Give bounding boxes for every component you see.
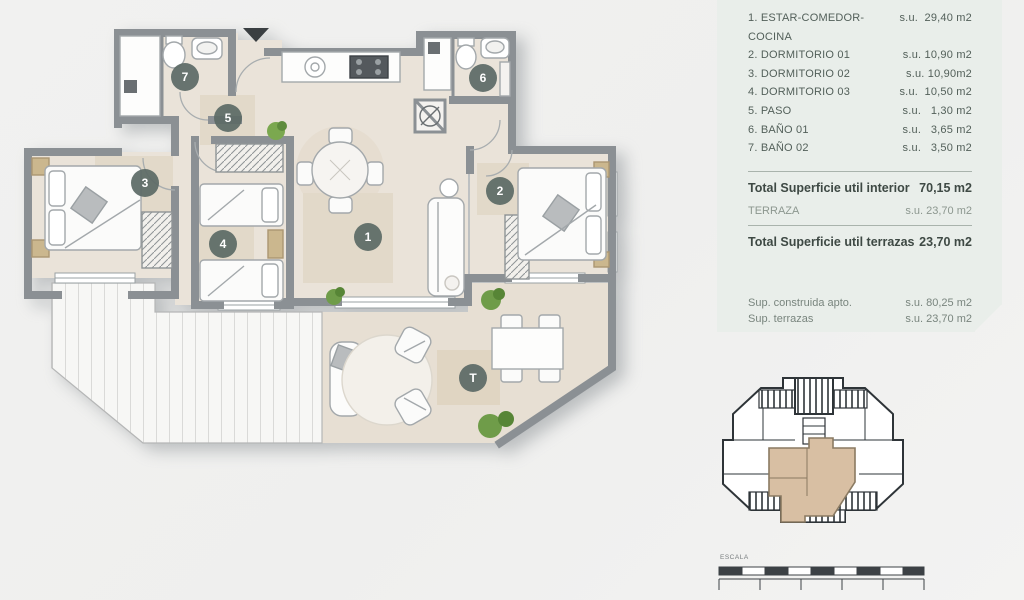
list-item: 5. PASOs.u. 1,30 m2 [748,102,972,121]
svg-text:1: 1 [365,230,372,244]
room-badge-2: 2 [486,177,514,205]
room-label: 2. DORMITORIO 01 [748,46,850,65]
bed-single-4a [200,184,283,226]
room-badge-6: 6 [469,64,497,92]
entrance-arrow-icon [243,28,269,42]
total-construida-row: TOTAL CONSTRUIDA 103,95 m2 [748,335,972,367]
room-area: s.u. 10,90m2 [906,65,972,84]
floor-plan: 1 2 3 4 5 6 7 T [0,0,700,600]
total-terrazas-value: 23,70 m2 [919,235,972,249]
svg-text:T: T [469,371,477,385]
svg-text:3: 3 [142,176,149,190]
scale-label: ESCALA [720,554,934,561]
svg-text:4: 4 [220,237,227,251]
terrace-badge: T [459,364,487,392]
room-area-list: 1. ESTAR-COMEDOR-COCINAs.u. 29,40 m2 2. … [748,9,972,158]
room-area: s.u. 3,50 m2 [903,139,972,158]
bed-double-2 [518,162,609,267]
room-label: 3. DORMITORIO 02 [748,65,850,84]
room-area: s.u. 29,40 m2 [899,9,972,28]
room-label: 7. BAÑO 02 [748,139,809,158]
scale-bar: ESCALA [714,554,934,596]
total-construida-label: TOTAL CONSTRUIDA [748,344,875,358]
room-area: s.u. 3,65 m2 [903,121,972,140]
sup-construida-row: Sup. construida apto. s.u. 80,25 m2 [748,295,972,312]
bench-4 [268,230,283,258]
room-label: 6. BAÑO 01 [748,121,809,140]
svg-text:7: 7 [182,70,189,84]
room-badge-7: 7 [171,63,199,91]
room-badge-4: 4 [209,230,237,258]
room-badge-1: 1 [354,223,382,251]
bed-double-3 [32,158,141,257]
divider [748,334,972,335]
sup-terrazas-value: s.u. 23,70 m2 [905,311,972,328]
apartment: 1 2 3 4 5 6 7 T [28,28,617,443]
total-construida-value: 103,95 m2 [912,344,972,358]
sup-terrazas-row: Sup. terrazas s.u. 23,70 m2 [748,311,972,328]
list-item: 7. BAÑO 02s.u. 3,50 m2 [748,139,972,158]
terraza-label: TERRAZA [748,205,799,217]
list-item: 6. BAÑO 01s.u. 3,65 m2 [748,121,972,140]
built-area-block: Sup. construida apto. s.u. 80,25 m2 Sup.… [748,295,972,328]
building-key-plan [711,366,917,538]
svg-text:2: 2 [497,184,504,198]
floor-plan-svg: 1 2 3 4 5 6 7 T [0,0,700,600]
scale-bar-graphic [714,563,934,593]
list-item: 1. ESTAR-COMEDOR-COCINAs.u. 29,40 m2 [748,9,972,46]
room-label: 5. PASO [748,102,791,121]
svg-text:6: 6 [480,71,487,85]
total-interior-label: Total Superficie util interior [748,181,910,195]
svg-text:5: 5 [225,111,232,125]
list-item: 4. DORMITORIO 03s.u. 10,50 m2 [748,83,972,102]
total-terrazas-row: Total Superficie util terrazas 23,70 m2 [748,226,972,257]
area-summary-panel: 1. ESTAR-COMEDOR-COCINAs.u. 29,40 m2 2. … [717,0,1002,332]
bed-single-4b [200,260,283,301]
wardrobe-4 [216,144,283,172]
total-terrazas-label: Total Superficie util terrazas [748,235,914,249]
list-item: 2. DORMITORIO 01s.u. 10,90 m2 [748,46,972,65]
sup-terrazas-label: Sup. terrazas [748,311,813,328]
total-interior-value: 70,15 m2 [919,181,972,195]
room-badge-5: 5 [214,104,242,132]
room-badge-3: 3 [131,169,159,197]
wardrobe-3 [142,212,172,268]
room-area: s.u. 1,30 m2 [903,102,972,121]
room-area: s.u. 10,50 m2 [899,83,972,102]
room-area: s.u. 10,90 m2 [903,46,972,65]
terraza-row: TERRAZA s.u. 23,70 m2 [748,203,972,225]
room-label: 1. ESTAR-COMEDOR-COCINA [748,9,899,46]
sup-construida-value: s.u. 80,25 m2 [905,295,972,312]
sup-construida-label: Sup. construida apto. [748,295,852,312]
kitchen-counter [282,52,400,82]
list-item: 3. DORMITORIO 02s.u. 10,90m2 [748,65,972,84]
terraza-value: s.u. 23,70 m2 [905,205,972,217]
total-interior-row: Total Superficie util interior 70,15 m2 [748,172,972,203]
room-label: 4. DORMITORIO 03 [748,83,850,102]
